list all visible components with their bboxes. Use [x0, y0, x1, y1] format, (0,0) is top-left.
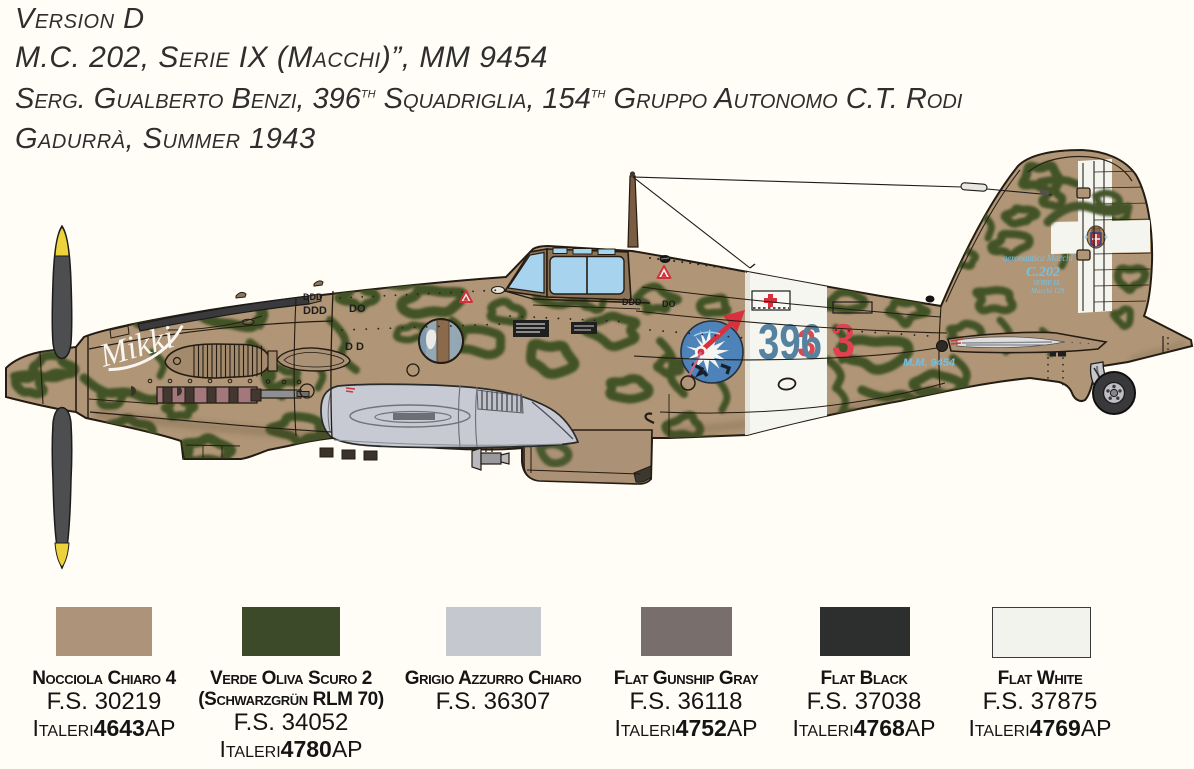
svg-text:DDD: DDD: [303, 292, 323, 302]
svg-text:DDD: DDD: [622, 297, 642, 307]
svg-text:aeronautica Macchi: aeronautica Macchi: [1003, 253, 1073, 263]
svg-text:396: 396: [758, 314, 822, 370]
svg-text:D D: D D: [345, 341, 364, 353]
svg-text:3: 3: [832, 314, 855, 367]
svg-text:DO: DO: [349, 303, 366, 315]
svg-text:C.202: C.202: [1026, 265, 1060, 280]
svg-text:DO: DO: [662, 299, 676, 309]
svg-text:DDD: DDD: [303, 305, 327, 317]
svg-text:Macchi 129: Macchi 129: [1030, 287, 1065, 295]
svg-text:M.M. 9454: M.M. 9454: [903, 357, 955, 369]
svg-text:SERIE IX: SERIE IX: [1033, 279, 1061, 287]
